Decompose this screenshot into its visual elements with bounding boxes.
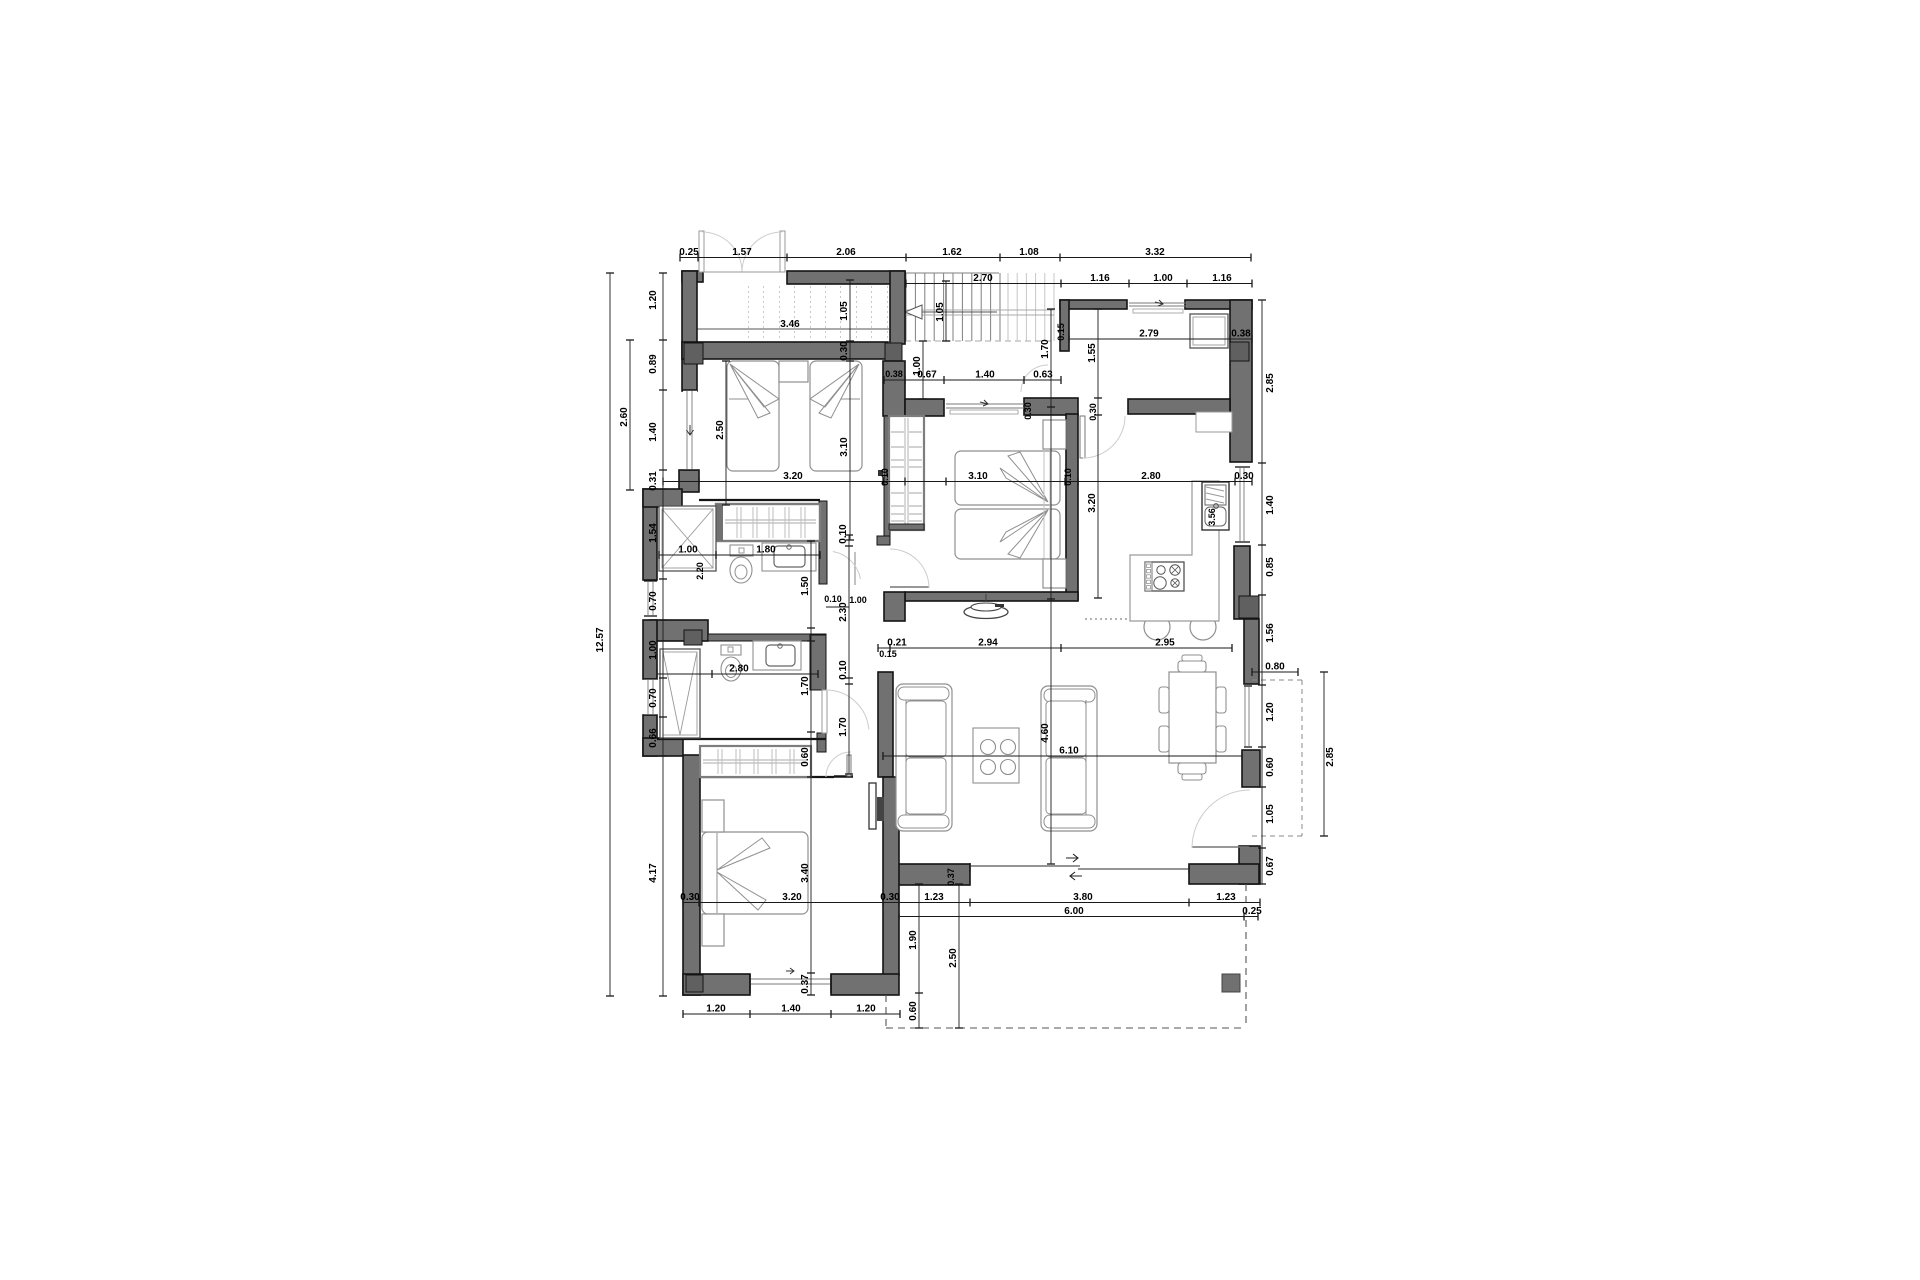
svg-text:1.20: 1.20	[1265, 702, 1276, 722]
svg-text:0.15: 0.15	[1056, 323, 1066, 341]
svg-text:0.30: 0.30	[1088, 403, 1098, 421]
svg-text:1.00: 1.00	[912, 356, 923, 376]
svg-text:1.23: 1.23	[1216, 892, 1236, 903]
svg-text:12.57: 12.57	[595, 627, 606, 652]
svg-text:2.85: 2.85	[1325, 747, 1336, 767]
svg-text:1.55: 1.55	[1087, 343, 1098, 363]
svg-text:1.05: 1.05	[839, 301, 850, 321]
svg-text:1.16: 1.16	[1212, 273, 1232, 284]
svg-text:0.30: 0.30	[680, 892, 700, 903]
svg-text:3.20: 3.20	[782, 892, 802, 903]
svg-text:0.70: 0.70	[648, 591, 659, 611]
svg-text:0.67: 0.67	[1265, 856, 1276, 876]
svg-text:0.66: 0.66	[648, 728, 659, 748]
svg-text:0.21: 0.21	[887, 638, 907, 649]
svg-text:3.32: 3.32	[1145, 247, 1165, 258]
svg-text:1.23: 1.23	[924, 892, 944, 903]
svg-text:1.00: 1.00	[849, 595, 867, 605]
svg-text:6.00: 6.00	[1064, 906, 1084, 917]
svg-text:1.16: 1.16	[1090, 273, 1110, 284]
svg-text:2.94: 2.94	[978, 638, 998, 649]
svg-text:0.10: 0.10	[838, 524, 849, 544]
svg-text:1.40: 1.40	[781, 1004, 801, 1015]
svg-text:0.31: 0.31	[648, 471, 659, 491]
svg-text:1.05: 1.05	[1265, 804, 1276, 824]
svg-text:1.20: 1.20	[648, 290, 659, 310]
svg-text:1.40: 1.40	[648, 422, 659, 442]
svg-text:0.70: 0.70	[648, 688, 659, 708]
svg-text:1.80: 1.80	[756, 545, 776, 556]
svg-text:2.06: 2.06	[836, 247, 856, 258]
svg-text:0.30: 0.30	[880, 892, 900, 903]
svg-text:0.15: 0.15	[879, 649, 897, 659]
svg-text:3.10: 3.10	[839, 437, 850, 457]
svg-text:6.10: 6.10	[1059, 746, 1079, 757]
svg-text:3.40: 3.40	[800, 863, 811, 883]
svg-text:2.80: 2.80	[729, 664, 749, 675]
svg-text:1.70: 1.70	[1040, 339, 1051, 359]
svg-text:0.10: 0.10	[838, 660, 849, 680]
svg-text:1.00: 1.00	[678, 545, 698, 556]
svg-text:0.85: 0.85	[1265, 557, 1276, 577]
svg-text:0.10: 0.10	[824, 594, 842, 604]
svg-text:1.54: 1.54	[648, 523, 659, 543]
svg-text:0.37: 0.37	[800, 974, 811, 994]
svg-text:1.62: 1.62	[942, 247, 962, 258]
svg-text:2.80: 2.80	[1141, 471, 1161, 482]
svg-text:0.60: 0.60	[908, 1001, 919, 1021]
svg-text:3.20: 3.20	[783, 471, 803, 482]
svg-text:2.79: 2.79	[1139, 329, 1159, 340]
svg-text:2.60: 2.60	[619, 407, 630, 427]
svg-text:1.00: 1.00	[1153, 273, 1173, 284]
svg-text:3.46: 3.46	[780, 319, 800, 330]
svg-text:0.63: 0.63	[1033, 370, 1053, 381]
svg-text:4.60: 4.60	[1040, 723, 1051, 743]
svg-text:2.50: 2.50	[948, 948, 959, 968]
svg-text:1.08: 1.08	[1019, 247, 1039, 258]
svg-text:0.30: 0.30	[839, 341, 850, 361]
svg-text:0.38: 0.38	[885, 369, 903, 379]
svg-text:0.60: 0.60	[800, 747, 811, 767]
svg-text:2.50: 2.50	[715, 420, 726, 440]
svg-text:1.20: 1.20	[856, 1004, 876, 1015]
svg-text:3.80: 3.80	[1073, 892, 1093, 903]
svg-text:1.00: 1.00	[648, 640, 659, 660]
svg-text:0.89: 0.89	[648, 354, 659, 374]
svg-text:0.10: 0.10	[1063, 468, 1073, 486]
svg-text:1.20: 1.20	[706, 1004, 726, 1015]
svg-text:1.05: 1.05	[935, 302, 946, 322]
svg-text:0.25: 0.25	[1242, 906, 1262, 917]
svg-text:0.60: 0.60	[1265, 757, 1276, 777]
svg-text:1.57: 1.57	[732, 247, 752, 258]
svg-text:3.20: 3.20	[1087, 493, 1098, 513]
svg-text:1.56: 1.56	[1265, 623, 1276, 643]
svg-text:1.70: 1.70	[838, 717, 849, 737]
svg-text:3.56: 3.56	[1207, 508, 1217, 526]
svg-text:0.30: 0.30	[1234, 471, 1254, 482]
svg-text:2.95: 2.95	[1155, 638, 1175, 649]
svg-text:1.40: 1.40	[975, 370, 995, 381]
svg-text:1.50: 1.50	[800, 576, 811, 596]
svg-text:0.30: 0.30	[1023, 402, 1033, 420]
svg-text:0.37: 0.37	[946, 868, 956, 886]
svg-text:4.17: 4.17	[648, 863, 659, 883]
svg-text:0.10: 0.10	[880, 468, 890, 486]
svg-text:2.20: 2.20	[695, 562, 705, 580]
svg-text:3.10: 3.10	[968, 471, 988, 482]
svg-text:1.70: 1.70	[800, 676, 811, 696]
svg-text:2.30: 2.30	[838, 602, 849, 622]
svg-text:2.85: 2.85	[1265, 373, 1276, 393]
svg-text:1.90: 1.90	[908, 930, 919, 950]
svg-text:0.80: 0.80	[1265, 662, 1285, 673]
svg-text:1.40: 1.40	[1265, 495, 1276, 515]
svg-text:0.25: 0.25	[679, 247, 699, 258]
svg-text:0.38: 0.38	[1231, 329, 1251, 340]
svg-text:2.70: 2.70	[973, 273, 993, 284]
